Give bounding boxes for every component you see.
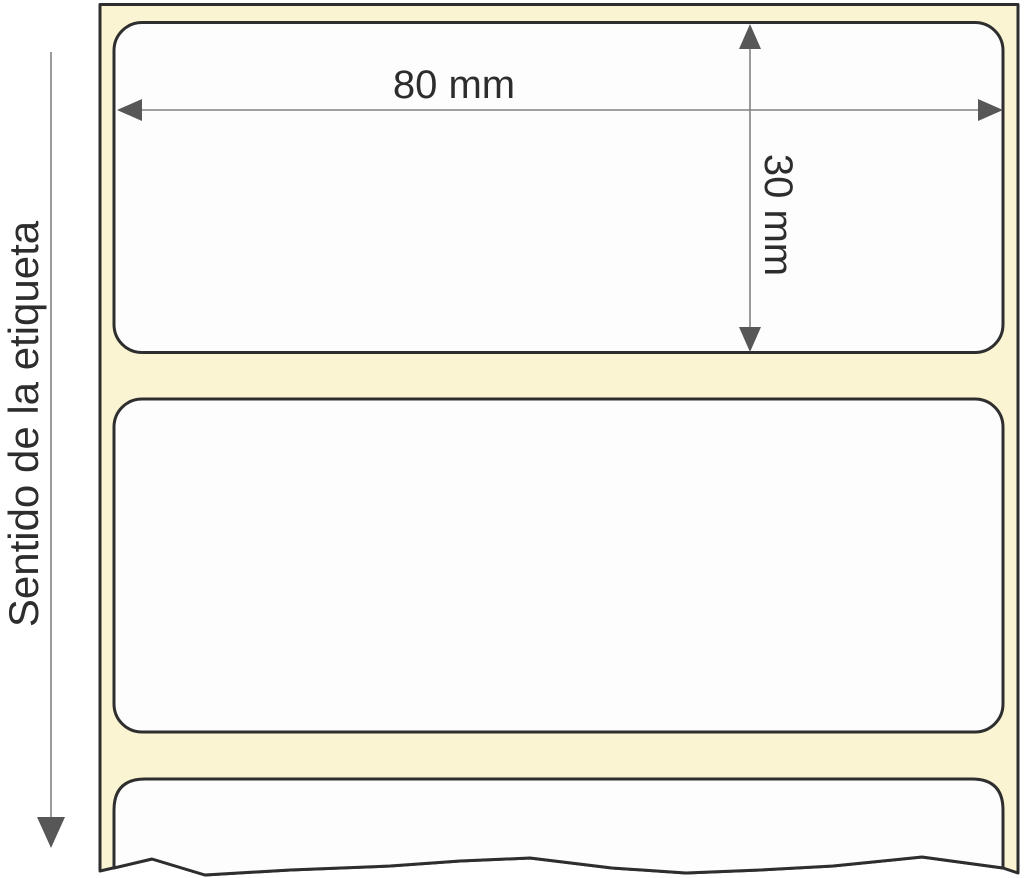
label-2: [114, 399, 1003, 732]
feed-direction: Sentido de la etiqueta: [0, 52, 65, 848]
label-1: [114, 23, 1003, 353]
feed-direction-arrowhead-icon: [37, 817, 65, 848]
feed-direction-label: Sentido de la etiqueta: [0, 220, 47, 627]
height-dimension-label: 30 mm: [756, 154, 800, 276]
label-3-torn: [114, 779, 1003, 875]
diagram-svg: 80 mm 30 mm Sentido de la etiqueta: [0, 0, 1024, 878]
label-roll-diagram: 80 mm 30 mm Sentido de la etiqueta: [0, 0, 1024, 878]
width-dimension-label: 80 mm: [393, 63, 515, 107]
